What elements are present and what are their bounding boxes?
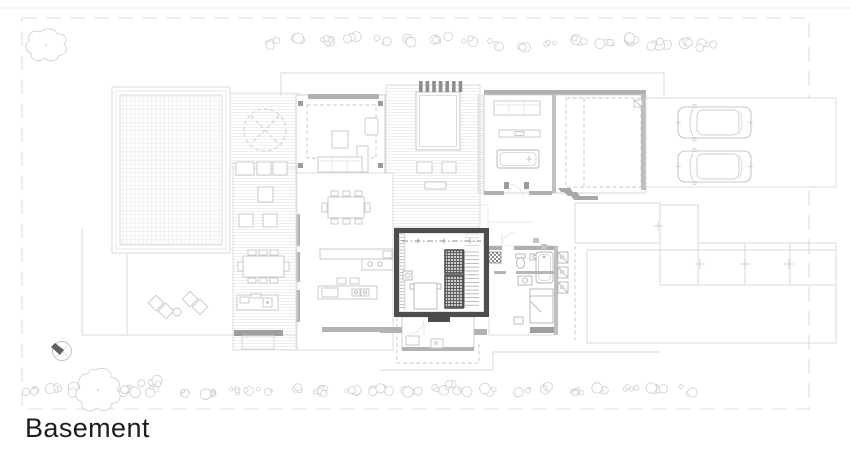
deck-stair (234, 330, 283, 336)
sink-2 (518, 276, 532, 285)
floor-label: Basement (25, 413, 150, 444)
outdoor-deck (233, 162, 297, 350)
garage-door-strip (478, 95, 484, 193)
floor-plan-canvas: Basement (0, 0, 850, 456)
dresser (530, 327, 555, 333)
window-marks (653, 221, 794, 269)
floor-plan-drawing (0, 0, 850, 456)
entry (380, 317, 487, 363)
car-1 (676, 105, 753, 141)
shelf-boxes (558, 252, 568, 293)
tree-canopies (26, 29, 120, 411)
pool-deck (386, 81, 480, 227)
outdoor-kitchen (237, 294, 278, 310)
bed (530, 289, 553, 323)
right-terraces (575, 203, 836, 343)
toilet (516, 254, 525, 269)
console-table (499, 130, 540, 137)
living-room (296, 94, 385, 173)
pool (416, 92, 460, 150)
door-arc (502, 233, 515, 246)
core-sink (403, 271, 412, 280)
bathtub-upper (497, 150, 539, 168)
right-wing (478, 90, 646, 200)
armchair (365, 118, 378, 135)
side-table (173, 308, 181, 316)
car-2 (676, 149, 753, 185)
left-terrace (112, 87, 230, 253)
driveway (646, 98, 836, 187)
nightstand (514, 317, 523, 324)
shaft-lower (445, 275, 463, 308)
sofa (318, 157, 362, 172)
parasol-terrace (230, 93, 300, 168)
washer (488, 252, 501, 263)
lounge-patio (148, 291, 208, 319)
bath-bedroom (487, 222, 575, 340)
basement-core (397, 231, 487, 323)
kitchen-dining (296, 173, 393, 350)
shaft-upper (445, 250, 463, 273)
north-arrow-icon (51, 342, 72, 361)
coffee-table (332, 131, 348, 148)
lounge-sofa (494, 101, 540, 115)
core-bed (410, 283, 441, 309)
bathtub (536, 252, 553, 283)
